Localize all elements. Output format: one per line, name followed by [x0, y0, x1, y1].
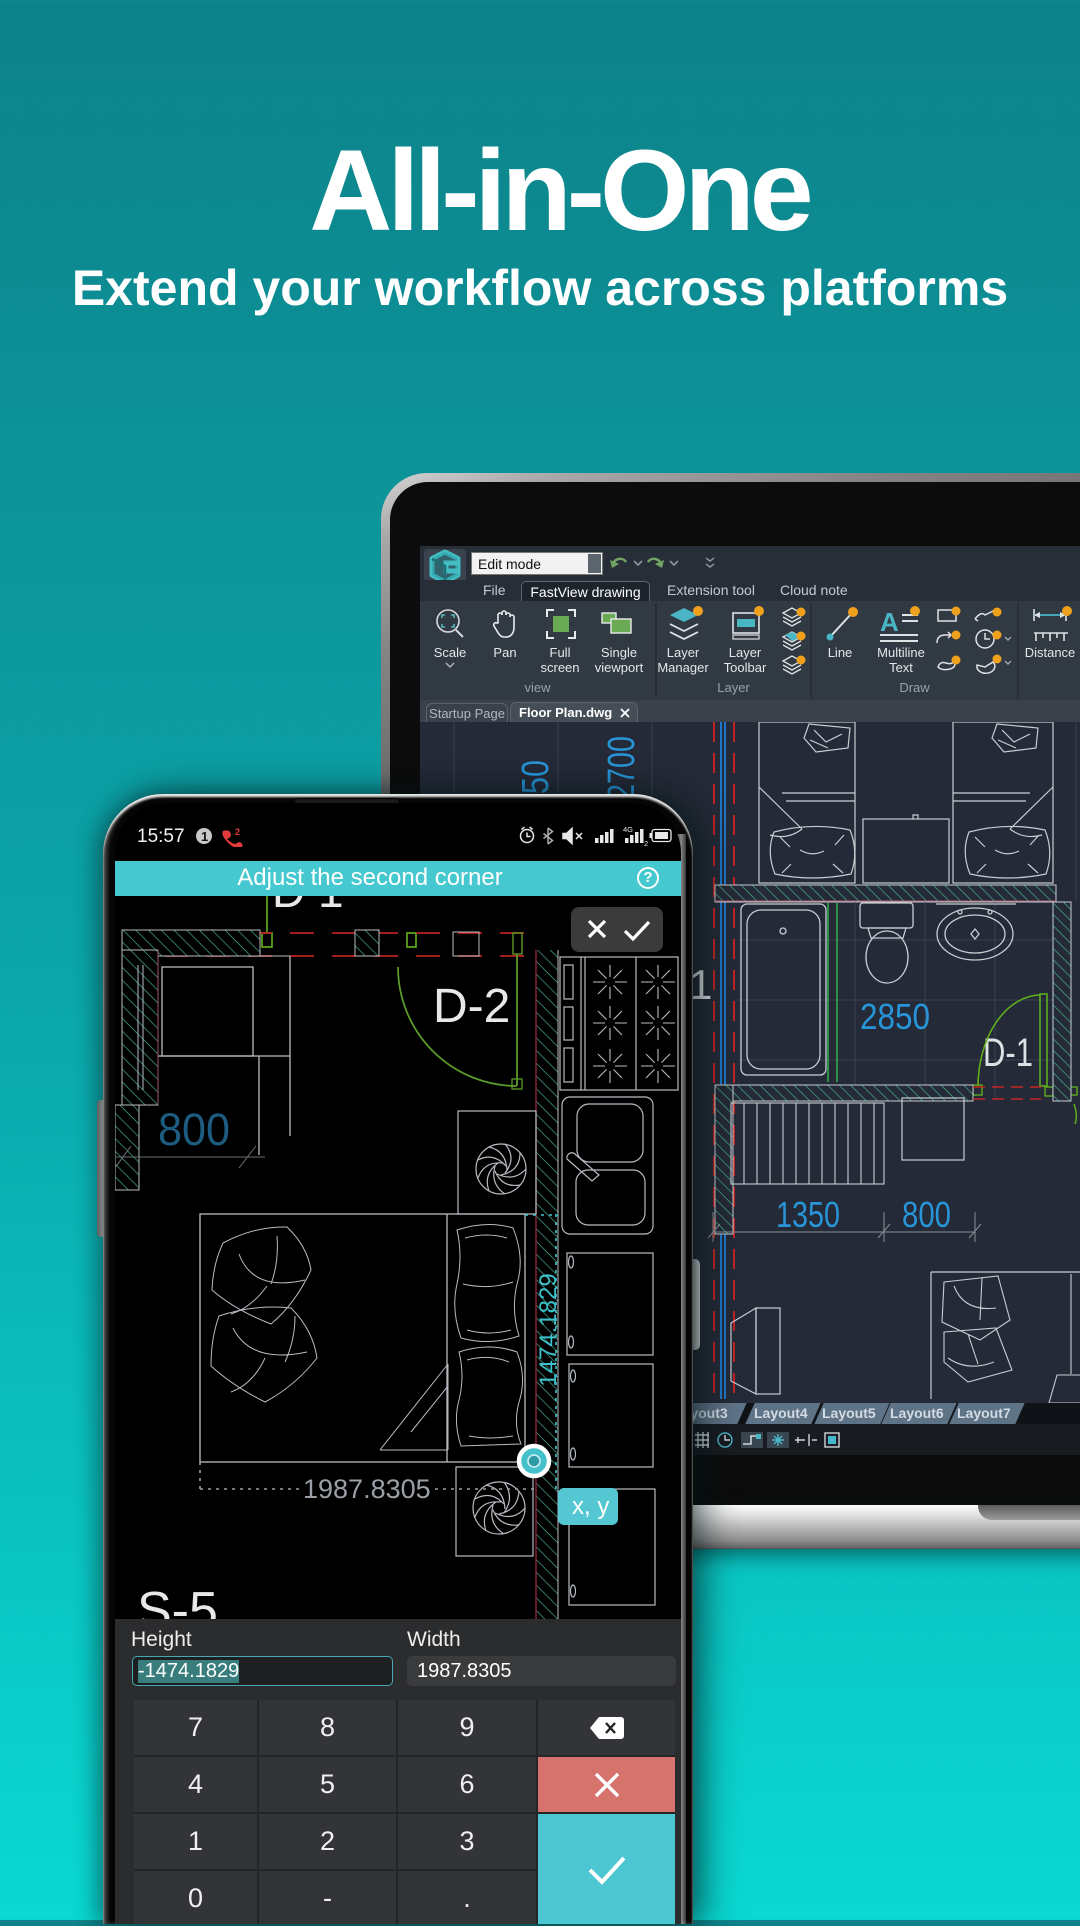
svg-text:4G: 4G	[623, 825, 633, 834]
svg-text:D-2: D-2	[433, 980, 510, 1033]
svg-text:x, y: x, y	[572, 1493, 609, 1520]
svg-text:1987.8305: 1987.8305	[303, 1474, 431, 1504]
svg-text:A: A	[880, 607, 899, 637]
svg-text:D-1: D-1	[983, 1031, 1033, 1075]
svg-text:2: 2	[235, 827, 240, 837]
svg-text:D 1: D 1	[272, 896, 344, 917]
svg-text:800: 800	[158, 1104, 230, 1155]
svg-text:2: 2	[644, 839, 648, 847]
svg-text:50: 50	[515, 760, 557, 794]
svg-text:800: 800	[902, 1194, 951, 1235]
svg-text:1474.1829: 1474.1829	[535, 1273, 562, 1386]
svg-text:2700: 2700	[601, 736, 643, 800]
svg-text:1350: 1350	[776, 1194, 840, 1235]
svg-text:S-5: S-5	[137, 1582, 218, 1619]
svg-text:1: 1	[201, 829, 208, 844]
svg-text:2850: 2850	[860, 996, 930, 1037]
